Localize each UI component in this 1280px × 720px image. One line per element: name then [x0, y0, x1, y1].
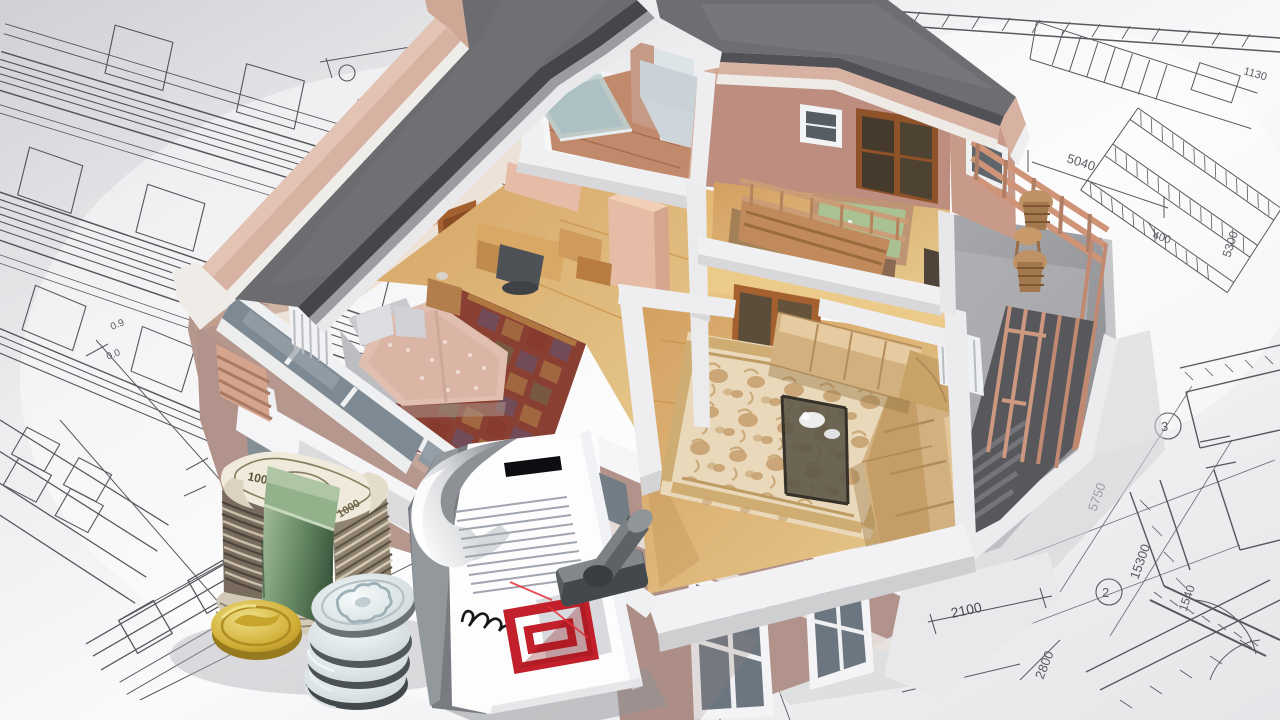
svg-text:2: 2 [1102, 585, 1109, 600]
